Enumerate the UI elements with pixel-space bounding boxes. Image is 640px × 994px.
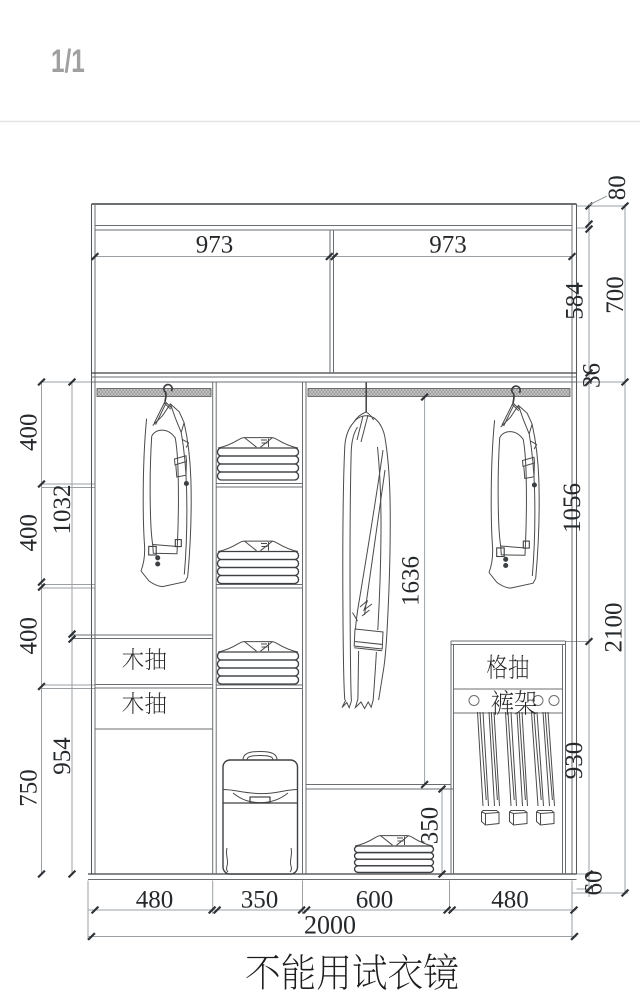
svg-text:480: 480 [136,887,174,914]
svg-text:480: 480 [491,887,529,914]
svg-text:930: 930 [561,742,588,780]
svg-text:1636: 1636 [398,556,425,606]
svg-text:1032: 1032 [49,485,76,535]
svg-text:400: 400 [16,514,43,552]
svg-text:954: 954 [49,737,76,775]
svg-text:60: 60 [581,871,608,896]
svg-text:700: 700 [602,276,629,314]
svg-text:973: 973 [429,232,467,259]
svg-text:973: 973 [196,232,234,259]
svg-text:600: 600 [356,887,394,914]
svg-text:350: 350 [241,887,279,914]
svg-text:400: 400 [16,617,43,655]
svg-text:2100: 2100 [601,603,628,653]
svg-text:350: 350 [417,807,444,845]
svg-text:584: 584 [562,282,589,320]
svg-text:400: 400 [16,414,43,452]
svg-text:36: 36 [579,363,606,388]
svg-text:1056: 1056 [559,483,586,533]
svg-text:80: 80 [604,175,631,200]
svg-text:2000: 2000 [304,911,356,940]
svg-text:1/1: 1/1 [51,44,85,80]
svg-text:750: 750 [16,769,43,807]
